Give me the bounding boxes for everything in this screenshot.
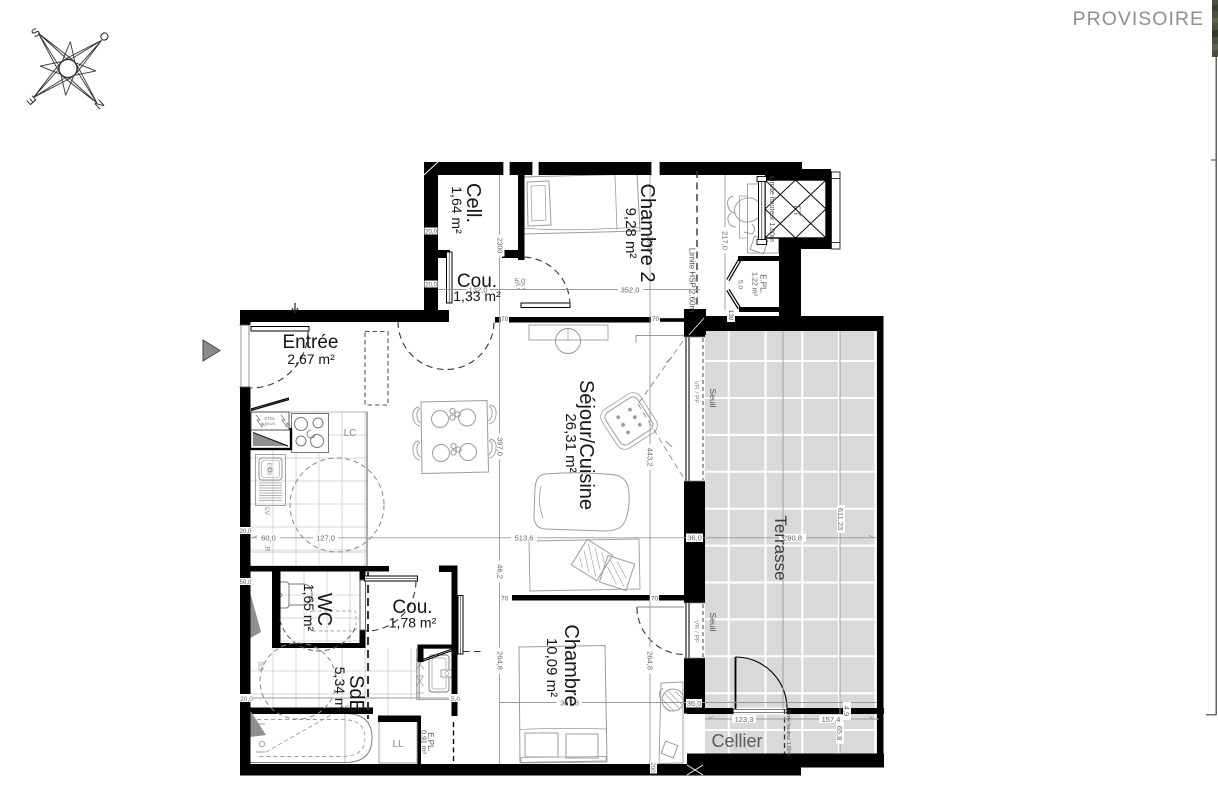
svg-text:36,0: 36,0 [687,699,702,708]
svg-text:9,28 m²: 9,28 m² [622,208,639,259]
svg-text:VR / PF: VR / PF [693,620,700,643]
svg-text:Cellier: Cellier [711,731,762,751]
svg-text:Limite HSP 2.60m: Limite HSP 2.60m [688,248,697,313]
svg-text:36,0: 36,0 [687,533,702,542]
svg-text:E.PL.: E.PL. [759,274,768,294]
svg-text:397,0: 397,0 [496,437,505,456]
svg-text:ETEL: ETEL [264,416,276,421]
svg-text:1,65 m²: 1,65 m² [301,584,317,632]
svg-text:46,2: 46,2 [496,564,505,579]
svg-text:443,2: 443,2 [646,448,655,467]
svg-text:70: 70 [652,316,660,323]
svg-text:60x25: 60x25 [265,422,275,426]
svg-text:LC: LC [344,428,357,439]
svg-text:217,0: 217,0 [721,231,730,250]
svg-text:5,0: 5,0 [451,696,460,703]
svg-text:LL: LL [392,739,404,750]
svg-text:10,09 m²: 10,09 m² [543,638,560,697]
svg-text:0,91 m³: 0,91 m³ [420,730,427,754]
svg-text:2300: 2300 [496,238,503,254]
svg-text:611,23: 611,23 [836,508,845,530]
svg-text:60,0: 60,0 [261,534,276,543]
svg-text:Seuil: Seuil [708,389,718,408]
svg-text:5,0: 5,0 [737,280,744,289]
svg-text:26,31 m²: 26,31 m² [562,413,579,472]
svg-text:SS: SS [257,661,264,671]
svg-text:1,22 m³: 1,22 m³ [751,272,758,296]
svg-text:50,0: 50,0 [240,580,252,586]
svg-text:5,34 m²: 5,34 m² [332,667,348,715]
svg-text:70: 70 [501,316,509,323]
svg-text:20,0: 20,0 [425,229,437,235]
svg-text:VR / PF: VR / PF [693,381,700,404]
svg-text:264,8: 264,8 [646,651,655,670]
svg-text:20,0: 20,0 [425,282,437,288]
svg-text:PROVISOIRE: PROVISOIRE [1073,8,1204,30]
svg-text:FT: FT [792,206,802,217]
svg-text:2,67 m²: 2,67 m² [287,351,335,367]
svg-text:Chambre: Chambre [560,624,582,706]
svg-text:LV: LV [263,507,270,515]
svg-text:Limite hauteur 1.80m: Limite hauteur 1.80m [768,176,775,242]
svg-text:20,0: 20,0 [240,529,252,535]
svg-text:200: 200 [649,762,655,773]
svg-text:264,8: 264,8 [496,651,505,670]
svg-text:5,0: 5,0 [515,277,525,286]
svg-text:20,0: 20,0 [240,696,253,703]
svg-text:1,64 m²: 1,64 m² [449,186,465,234]
svg-text:limite hauteur 1,80m: limite hauteur 1,80m [785,710,791,755]
svg-text:352,0: 352,0 [621,285,640,294]
svg-text::R: :R [263,545,270,552]
svg-text:4,9: 4,9 [842,706,851,716]
svg-text:70: 70 [501,595,509,602]
svg-text:127,0: 127,0 [316,534,335,543]
svg-text:65,8: 65,8 [835,726,844,741]
svg-text:70: 70 [651,595,659,602]
svg-text:130: 130 [727,310,734,321]
svg-text:1,33 m²: 1,33 m² [453,288,501,304]
svg-text:EV/S: EV/S [266,463,272,476]
svg-text:Terrasse: Terrasse [771,515,790,580]
svg-text:Entrée: Entrée [283,332,339,353]
svg-text:513,6: 513,6 [515,534,534,543]
svg-text:Seuil: Seuil [708,613,718,632]
svg-text:123,3: 123,3 [735,715,754,724]
svg-text:1,78 m²: 1,78 m² [389,615,437,631]
